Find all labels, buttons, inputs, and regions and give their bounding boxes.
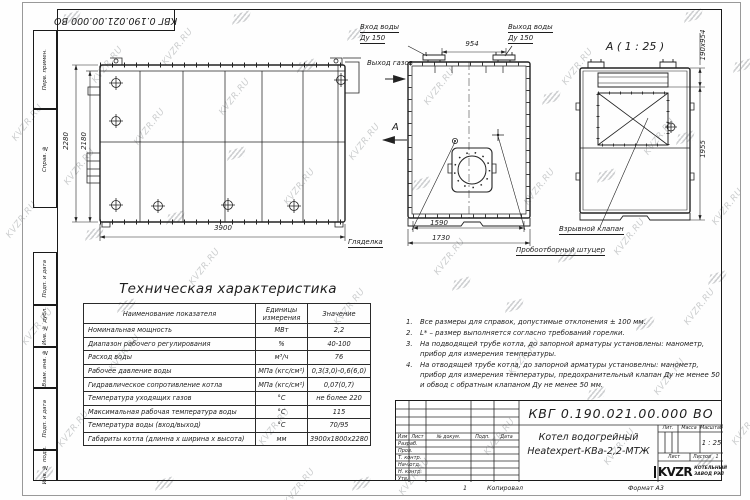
- label-water-in-du: Ду 150: [360, 34, 385, 44]
- view-a-letter: А: [392, 122, 399, 133]
- row-utv: Утв.: [398, 476, 426, 482]
- panel-seams: [100, 65, 345, 222]
- kvzr-logo-text: KVZR: [658, 465, 692, 479]
- dim-1590: 1590: [425, 219, 453, 227]
- label-water-out-du: Ду 150: [508, 34, 533, 44]
- sight-glass-mark: [452, 138, 457, 143]
- frame-cell-inv-dubl: Инв. № дубл.: [33, 305, 57, 347]
- lit-label: Лит.: [658, 426, 678, 431]
- product-name-line1: Котел водогрейный: [519, 431, 658, 445]
- product-name-line2: Heatexpert-КВа-2,2-МТЖ: [519, 445, 658, 459]
- label-water-in: Вход воды: [360, 23, 399, 33]
- dim-954: 954: [458, 40, 486, 48]
- spec-row: Гидравлическое сопротивление котлаМПа (к…: [84, 378, 371, 392]
- company-subtitle: КОТЕЛЬНЫЙ ЗАВОД РЭП: [694, 466, 727, 477]
- section-title: А ( 1 : 25 ): [600, 40, 670, 53]
- frame-cell-perv-primen: Перв. примен.: [33, 30, 57, 109]
- spec-table-block: Техническая характеристика Наименование …: [83, 281, 373, 446]
- spec-row: Габариты котла (длинна х ширина х высота…: [84, 432, 371, 446]
- frame-cell-inv-podl: Инв. № подл.: [33, 450, 57, 481]
- top-stamp-text: КВГ 0.190.021.00.000 ВО: [54, 15, 177, 26]
- burner-door: [448, 148, 496, 192]
- side-tabs: [576, 103, 694, 180]
- col-ndokum: № докум.: [426, 435, 471, 440]
- anchor-marks: [109, 73, 348, 213]
- spec-row: Диапазон рабочего регулирования%40-100: [84, 337, 371, 351]
- note-item: 4.На отводящей трубе котла, до запорной …: [406, 360, 722, 390]
- spec-row: Номинальная мощностьМВт2,2: [84, 324, 371, 338]
- boiler-section-view-a: [550, 25, 750, 240]
- note-item: 1.Все размеры для справок, допустимые от…: [406, 317, 722, 327]
- spec-row: Рабочее давление водыМПа (кгс/см²)0,3(3,…: [84, 364, 371, 378]
- spec-row: Температура уходящих газов°Сне более 220: [84, 391, 371, 405]
- rear-stubs: [588, 59, 676, 68]
- frame-cell-vzam-inv: Взам. инв. №: [33, 347, 57, 388]
- row-nkontr: Н. контр.: [398, 469, 426, 475]
- dim-2280: 2280: [62, 126, 70, 156]
- kvzr-logo-icon: [654, 466, 656, 478]
- scale-label: Масштаб: [700, 426, 723, 431]
- side-dimensions: [72, 65, 345, 241]
- copied-label: Копировал: [487, 485, 523, 492]
- sampling-mark: [492, 129, 504, 141]
- note-item: 2.L* – размер выполняется согласно требо…: [406, 328, 722, 338]
- frame-cell-podp-data-1: Подп. и дата: [33, 252, 57, 305]
- title-block: КВГ 0.190.021.00.000 ВО Котел водогрейны…: [395, 400, 722, 481]
- row-nachotd: Нач.отд.: [398, 462, 426, 468]
- format-label: Формат А3: [628, 485, 664, 492]
- engineering-drawing-sheet: KVZR.RUKVZR.RUKVZR.RUKVZR.RUKVZR.RUKVZR.…: [0, 0, 750, 500]
- dim-1955: 1955: [699, 131, 707, 167]
- dim-190x954: 190х954: [699, 27, 707, 63]
- copy-sheet-num: 1: [463, 485, 467, 492]
- col-data: Дата: [494, 435, 519, 440]
- scale-value: 1 : 25: [700, 434, 723, 452]
- side-fittings: [87, 58, 361, 227]
- gas-outlet-slot: [598, 73, 668, 87]
- label-sampling-fitting: Пробоотборный штуцер: [516, 246, 605, 256]
- top-stamp-box: КВГ 0.190.021.00.000 ВО: [57, 9, 175, 31]
- spec-table: Наименование показателя Единицы измерени…: [83, 303, 371, 446]
- sheets-value: 1: [712, 455, 722, 460]
- row-razrab: Разраб.: [398, 441, 426, 447]
- callout-leaders: [412, 136, 525, 230]
- explosion-valve-panel: [598, 93, 668, 145]
- dim-1730: 1730: [427, 234, 455, 242]
- col-list: Лист: [409, 435, 426, 440]
- doc-number: КВГ 0.190.021.00.000 ВО: [519, 401, 723, 425]
- label-explosion-valve: Взрывной клапан: [559, 225, 624, 235]
- spec-row: Максимальная рабочая температура воды°С1…: [84, 405, 371, 419]
- note-item: 3.На подводящей трубе котла, до запорной…: [406, 339, 722, 359]
- frame-cell-podp-data-2: Подп. и дата: [33, 388, 57, 450]
- row-prov: Пров.: [398, 448, 426, 454]
- section-base-skid: [580, 213, 690, 220]
- label-sight-glass: Гляделка: [348, 238, 383, 248]
- spec-header-row: Наименование показателя Единицы измерени…: [84, 304, 371, 324]
- sheets-label: Листов: [690, 455, 714, 460]
- dim-3900: 3900: [205, 224, 241, 232]
- dim-2180: 2180: [80, 126, 88, 156]
- valve-leader: [600, 118, 648, 227]
- label-gas-out: Выход газов: [367, 59, 413, 67]
- label-water-out: Выход воды: [508, 23, 553, 33]
- boiler-side-view: [60, 45, 360, 245]
- mass-label: Масса: [678, 426, 700, 431]
- notes-block: 1.Все размеры для справок, допустимые от…: [406, 317, 722, 391]
- sheet-label: Лист: [658, 455, 690, 460]
- frame-cell-sprav-no: Справ. №: [33, 109, 57, 208]
- boiler-front-view: [345, 15, 565, 265]
- spec-row: Температура воды (вход/выход)°С70/95: [84, 419, 371, 433]
- spec-row: Расход водым³/ч76: [84, 351, 371, 365]
- spec-table-title: Техническая характеристика: [83, 281, 373, 297]
- col-podp: Подп.: [471, 435, 494, 440]
- product-name: Котел водогрейный Heatexpert-КВа-2,2-МТЖ: [519, 431, 658, 460]
- col-izm: Изм: [396, 435, 409, 440]
- company-logo: KVZR КОТЕЛЬНЫЙ ЗАВОД РЭП: [658, 461, 723, 482]
- row-tkontr: Т. контр.: [398, 455, 426, 461]
